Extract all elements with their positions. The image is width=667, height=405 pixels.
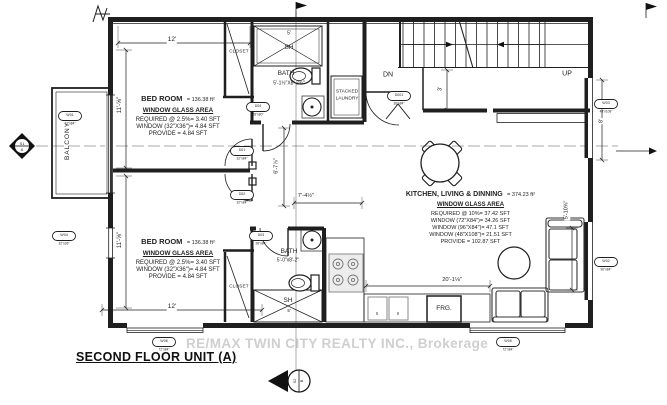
laundry-label-line1: STACKED xyxy=(336,91,358,96)
shower2-dim: 5' xyxy=(287,309,290,314)
kitchen-fixtures xyxy=(326,238,490,322)
balcony-label: BALCONY xyxy=(65,122,72,160)
glass-area-heading: WINDOW GLASS AREA xyxy=(378,202,563,208)
shower2-label: SH xyxy=(283,298,292,305)
tag-w04-id: W04 xyxy=(60,234,67,238)
tag-w05-size: 72"x84" xyxy=(503,348,514,351)
dim-sofa: 5'-10⅝" xyxy=(564,200,570,221)
tag-d03-size: 28"x84" xyxy=(256,242,267,245)
room-area: = 374.23 ft² xyxy=(507,192,535,198)
dining-set xyxy=(421,141,462,187)
tag-w05-id: W05 xyxy=(504,340,511,344)
dim-left-top: 11'-⅝" xyxy=(117,96,123,115)
shower1-dim: 5' xyxy=(287,32,291,37)
section2-top-label: S2 xyxy=(294,379,298,384)
shower1-label: SH xyxy=(284,45,293,52)
glass-req: REQUIRED @ 10%= 37.42 SFT xyxy=(378,211,563,217)
tag-w02-size: 96"x84" xyxy=(601,268,612,271)
dim-kitchen: 20'-1⅛" xyxy=(441,278,463,284)
bath1-label: BATH xyxy=(278,71,295,78)
glass-provide: PROVIDE = 4.84 SFT xyxy=(108,131,248,137)
dim-doorway: 6'-7⅞" xyxy=(274,157,280,175)
room-name: KITCHEN, LIVING & DINNING xyxy=(406,191,503,198)
section2-bottom-label: B xyxy=(301,380,305,383)
room-area: = 136.38 ft² xyxy=(187,240,215,246)
stairs-down-label: DN xyxy=(383,72,393,79)
tag-d03-id: D03 xyxy=(258,234,265,238)
bedroom1-label-block: BED ROOM = 136.38 ft² WINDOW GLASS AREA … xyxy=(108,88,248,137)
dim-right: 8' xyxy=(599,118,605,124)
tag-w04-size: 32"x36" xyxy=(59,242,70,245)
drawing-title: SECOND FLOOR UNIT (A) xyxy=(76,350,236,364)
laundry-label-line2: LAUNDRY xyxy=(336,98,359,103)
room-area: = 136.38 ft² xyxy=(187,97,215,103)
bedroom2-label-block: BED ROOM = 136.38 ft² WINDOW GLASS AREA … xyxy=(108,231,248,280)
tag-d02-id: D02 xyxy=(239,193,246,197)
glass-req: REQUIRED @ 2.5%= 3.40 SFT xyxy=(108,260,248,266)
tag-w03-size: 48"x108" xyxy=(600,110,613,113)
room-name: BED ROOM xyxy=(141,237,182,246)
glass-provide: PROVIDE = 102.87 SFT xyxy=(378,239,563,245)
glass-window: WINDOW (32"X36")= 4.84 SFT xyxy=(108,124,248,130)
glass-window3: WINDOW (48"X108")= 21.51 SFT xyxy=(378,232,563,238)
section1-top-label: S1 xyxy=(20,142,25,146)
tag-d04-id: D04 xyxy=(255,105,262,109)
glass-window2: WINDOW (96"X84")= 47.1 SFT xyxy=(378,225,563,231)
dim-stair: 3' xyxy=(438,86,444,92)
tag-d01-size: 32"x84" xyxy=(237,157,248,160)
bath2-size: 5'-0"x8'-2" xyxy=(277,259,299,264)
bath2-label: BATH xyxy=(281,249,298,256)
glass-area-heading: WINDOW GLASS AREA xyxy=(108,250,248,257)
glass-area-heading: WINDOW GLASS AREA xyxy=(108,107,248,114)
glass-req: REQUIRED @ 2.5%= 3.40 SFT xyxy=(108,117,248,123)
section1-bottom-label: A xyxy=(21,148,24,152)
glass-provide: PROVIDE = 4.84 SFT xyxy=(108,274,248,280)
closet2-label: CLOSET xyxy=(229,285,249,290)
glass-window1: WINDOW (72"X84")= 34.26 SFT xyxy=(378,218,563,224)
tag-w06-id: W06 xyxy=(160,340,167,344)
floorplan-page: BED ROOM = 136.38 ft² WINDOW GLASS AREA … xyxy=(0,0,667,405)
section-lines xyxy=(36,2,657,370)
round-chair xyxy=(498,247,530,279)
tag-w03-id: W03 xyxy=(602,102,609,106)
stairs-up-label: UP xyxy=(562,71,572,78)
bath1-size: 5'-1½"X8'-2¾" xyxy=(273,82,305,87)
kitchen-label-block: KITCHEN, LIVING & DINNING = 374.23 ft² W… xyxy=(378,183,563,245)
tag-d04-size: 28"x80" xyxy=(253,113,264,116)
dim-bottom: 12' xyxy=(167,304,177,311)
tag-d001-size: 36"x84" xyxy=(394,102,405,105)
tag-w02-id: W02 xyxy=(602,260,609,264)
watermark: RE/MAX TWIN CITY REALTY INC., Brokerage xyxy=(186,336,488,351)
room-name: BED ROOM xyxy=(141,94,182,103)
balcony-outline xyxy=(52,88,111,198)
closet1-label: CLOSET xyxy=(229,50,249,55)
tag-w01-size: 72"x84" xyxy=(65,122,76,125)
tag-w01-id: W01 xyxy=(66,114,73,118)
dim-left-bottom: 11'-⅝" xyxy=(117,231,123,250)
tag-d001-id: D001 xyxy=(395,94,404,98)
tag-d02-size: 32"x84" xyxy=(237,201,248,204)
glass-window: WINDOW (32"X36")= 4.84 SFT xyxy=(108,267,248,273)
tag-d01-id: D01 xyxy=(239,149,246,153)
stairs xyxy=(400,20,588,68)
dim-hall: 7'-4½" xyxy=(297,194,315,200)
dim-top: 12' xyxy=(167,37,177,44)
fridge-label: FRG. xyxy=(436,306,452,313)
